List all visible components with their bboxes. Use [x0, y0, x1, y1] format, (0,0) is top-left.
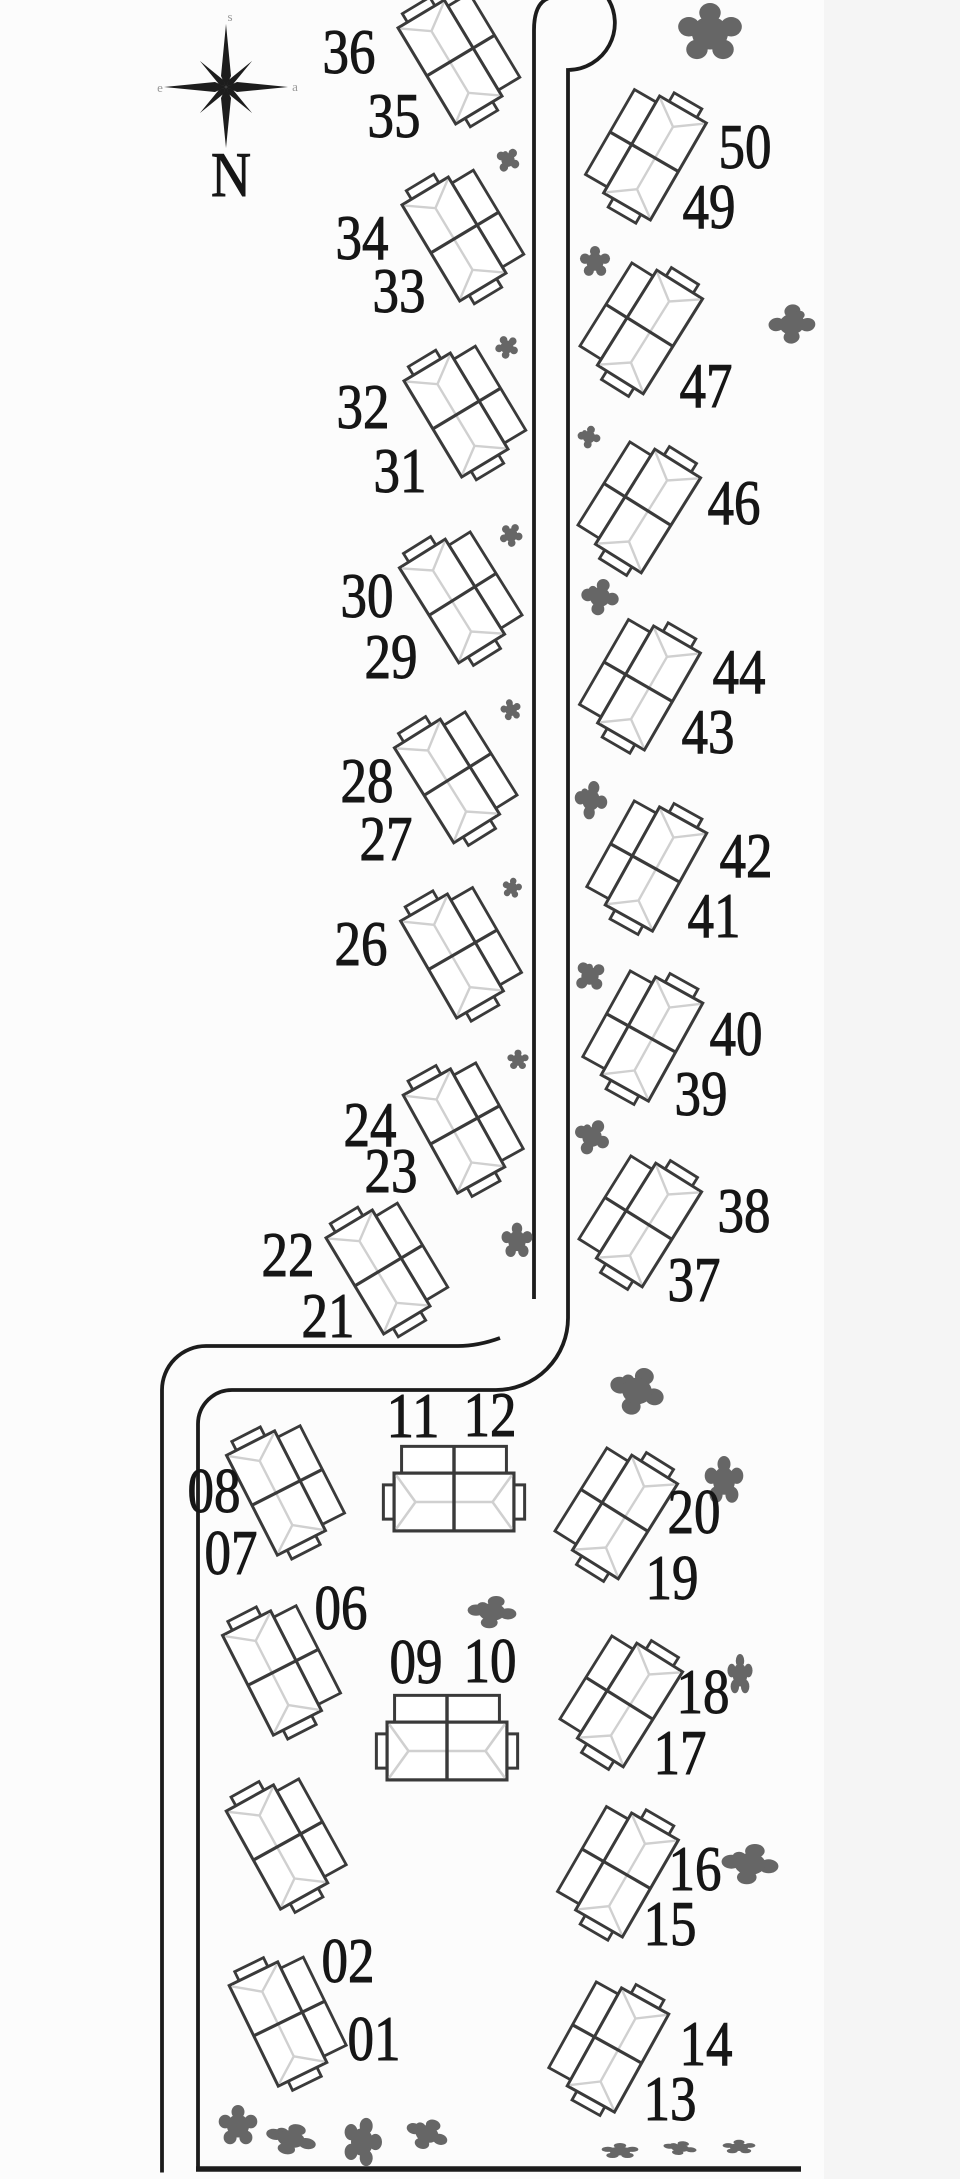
svg-text:38: 38 [718, 1175, 771, 1246]
svg-text:10: 10 [464, 1625, 517, 1696]
svg-text:23: 23 [365, 1135, 418, 1206]
svg-text:39: 39 [675, 1058, 728, 1129]
svg-text:08: 08 [188, 1455, 241, 1526]
svg-text:43: 43 [682, 696, 735, 767]
svg-text:19: 19 [646, 1542, 699, 1613]
svg-text:26: 26 [335, 908, 388, 979]
svg-text:35: 35 [368, 80, 421, 151]
svg-text:17: 17 [654, 1717, 707, 1788]
svg-text:27: 27 [360, 803, 413, 874]
svg-text:13: 13 [644, 2063, 697, 2134]
svg-text:46: 46 [708, 467, 761, 538]
svg-text:29: 29 [365, 621, 418, 692]
svg-text:33: 33 [373, 255, 426, 326]
svg-text:47: 47 [680, 350, 733, 421]
svg-text:20: 20 [668, 1476, 721, 1547]
svg-text:11: 11 [387, 1380, 440, 1451]
svg-text:31: 31 [374, 435, 427, 506]
svg-text:01: 01 [348, 2003, 401, 2074]
svg-text:49: 49 [683, 171, 736, 242]
svg-text:37: 37 [668, 1244, 721, 1315]
svg-text:06: 06 [315, 1572, 368, 1643]
svg-text:15: 15 [644, 1888, 697, 1959]
svg-text:36: 36 [323, 16, 376, 87]
svg-text:21: 21 [302, 1280, 355, 1351]
svg-text:12: 12 [464, 1379, 517, 1450]
svg-text:41: 41 [688, 880, 741, 951]
svg-text:02: 02 [322, 1925, 375, 1996]
svg-text:a: a [292, 79, 298, 94]
svg-text:N: N [211, 139, 251, 210]
svg-text:32: 32 [337, 371, 390, 442]
svg-text:09: 09 [390, 1626, 443, 1697]
svg-text:e: e [157, 80, 163, 95]
svg-text:s: s [227, 9, 232, 24]
svg-text:07: 07 [205, 1517, 258, 1588]
